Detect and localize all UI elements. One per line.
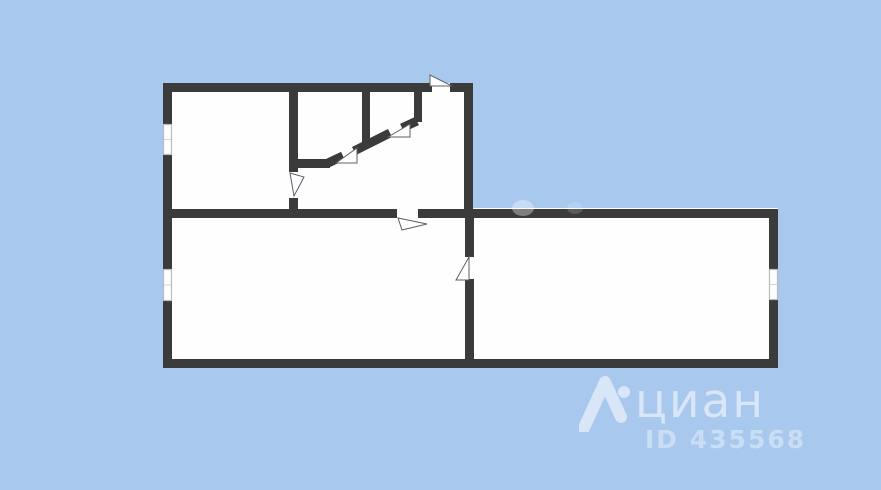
wall-left-upper-a: [163, 83, 172, 124]
floor-upper-section: [163, 83, 473, 218]
watermark-ghost-1: [512, 200, 534, 216]
wall-upper-section-right: [464, 83, 473, 218]
wall-lower-divider-upper: [465, 218, 474, 257]
cian-watermark: циан ID 435568: [575, 370, 875, 485]
wall-lower-divider-lower: [465, 279, 474, 368]
floorplan-canvas: циан ID 435568: [0, 0, 881, 490]
wall-middle-horizontal-left: [163, 209, 397, 218]
wall-room1-right-lower: [289, 198, 298, 213]
wall-middle-horizontal-right: [418, 209, 778, 218]
listing-id-text: ID 435568: [645, 427, 806, 453]
wall-hall-nub: [293, 159, 330, 168]
wall-right-lower: [769, 300, 778, 368]
wall-left-lower: [163, 301, 172, 368]
wall-right-upper: [769, 209, 778, 269]
wall-room2-right: [362, 92, 370, 143]
watermark-ghost-2: [567, 202, 583, 214]
door-entrance-leaf: [430, 75, 452, 86]
wall-top-left-segment: [163, 83, 432, 92]
cian-brand-text: циан: [635, 378, 765, 425]
cian-logo-icon: [579, 376, 631, 432]
